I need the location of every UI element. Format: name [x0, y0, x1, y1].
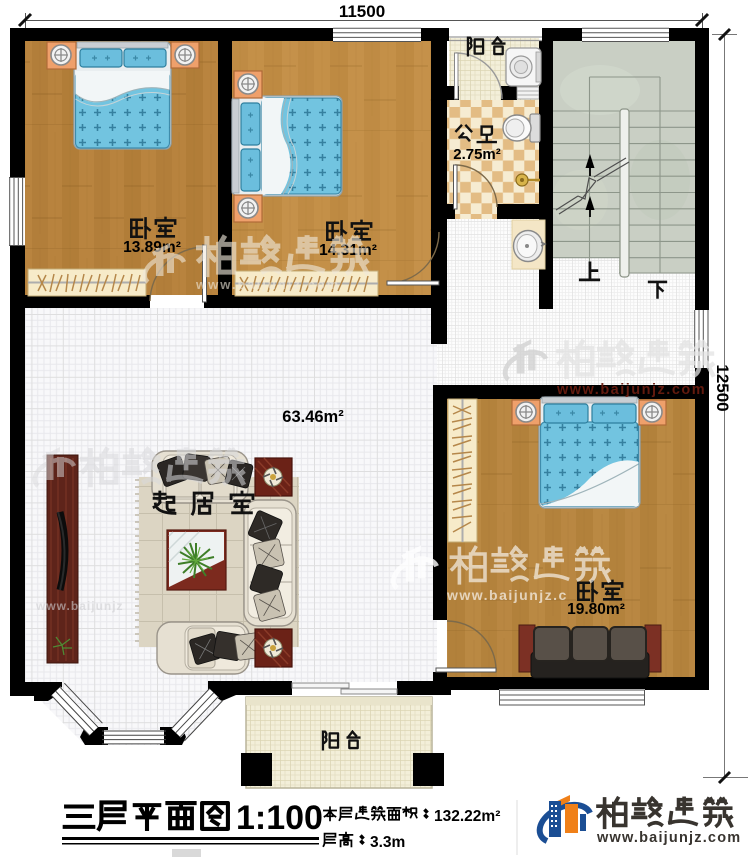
svg-text:19.80m²: 19.80m² [567, 601, 625, 618]
svg-text:132.22m²: 132.22m² [434, 808, 500, 825]
svg-text:www.baijunjz: www.baijunjz [35, 599, 124, 613]
svg-text:3.3m: 3.3m [370, 834, 405, 851]
svg-text:2.75m²: 2.75m² [453, 146, 501, 163]
svg-text:www.baijunjz.com: www.baijunjz.com [596, 830, 741, 846]
svg-text:11500: 11500 [339, 2, 385, 21]
svg-text:12500: 12500 [713, 364, 732, 411]
svg-text:63.46m²: 63.46m² [282, 408, 344, 426]
svg-text:1:100: 1:100 [236, 799, 323, 837]
svg-text:www.baijunjz.com: www.baijunjz.com [195, 277, 340, 292]
svg-text:www.baijunjz.c: www.baijunjz.c [446, 587, 568, 603]
svg-text:www.baijunjz.com: www.baijunjz.com [556, 382, 706, 398]
